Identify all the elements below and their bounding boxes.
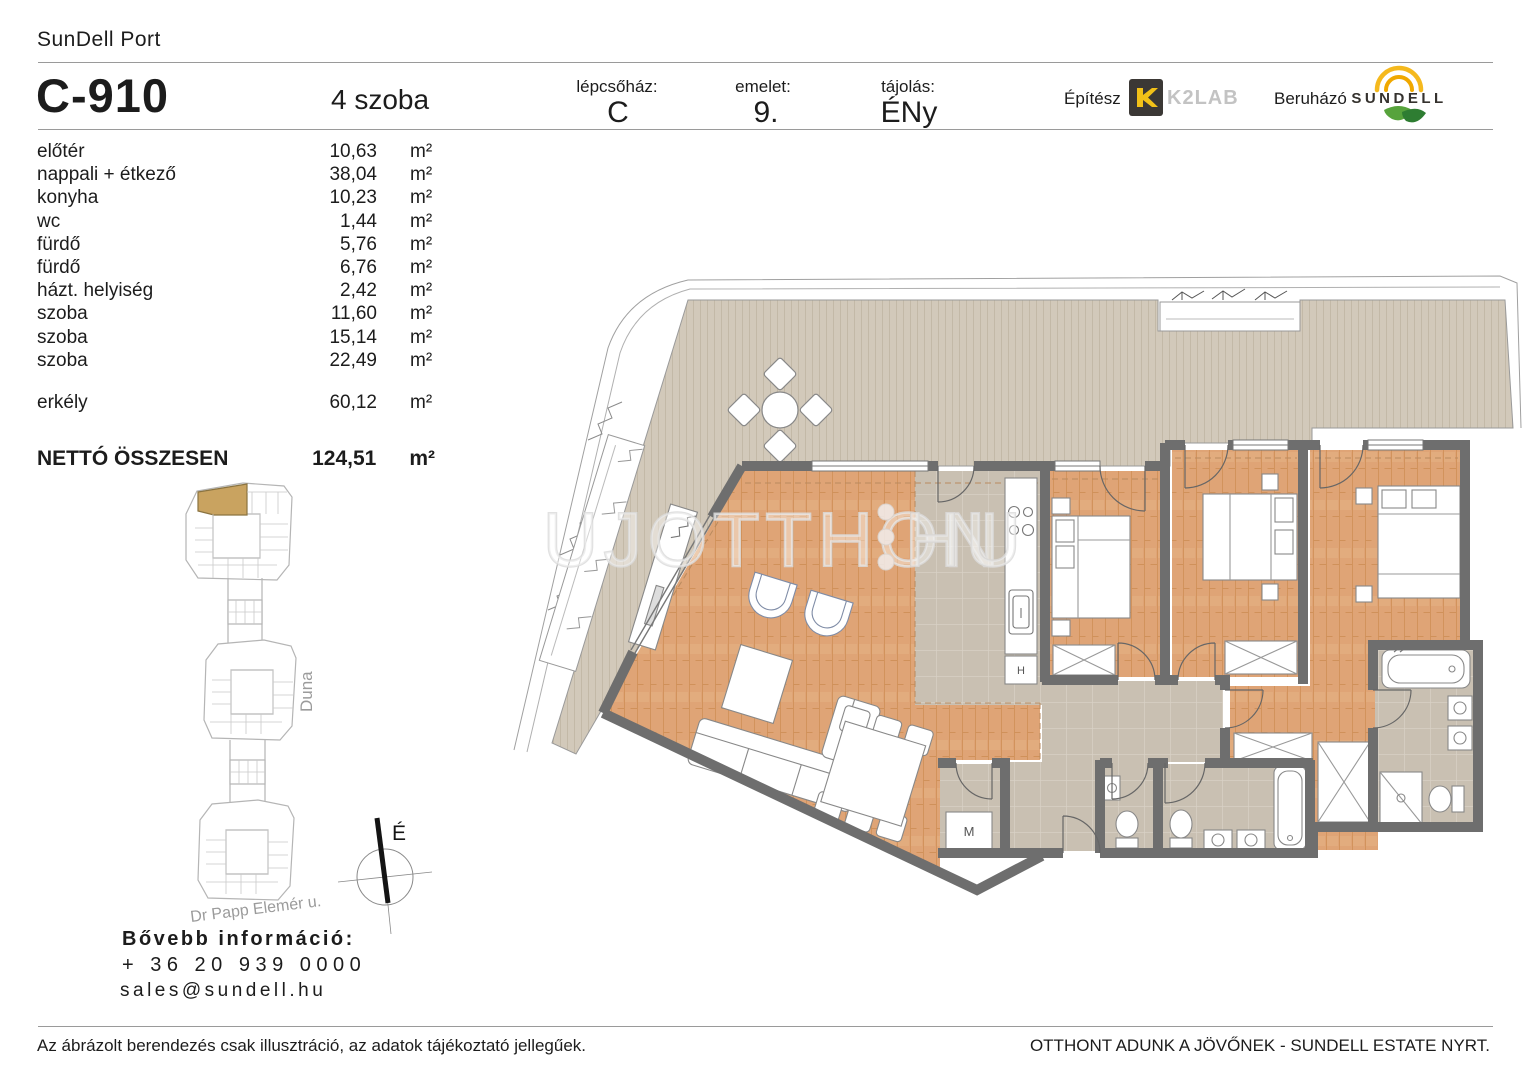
river-label: Duna bbox=[297, 671, 317, 712]
room-row: fürdő 6,76 m² bbox=[37, 256, 435, 279]
leaf-icon bbox=[1402, 109, 1426, 123]
room-name: nappali + étkező bbox=[37, 163, 293, 186]
room-area: 10,63 bbox=[293, 140, 377, 163]
balcony-area: 60,12 bbox=[293, 391, 377, 414]
toilet1 bbox=[1170, 810, 1192, 848]
project-title: SunDell Port bbox=[37, 28, 161, 52]
room-row: konyha 10,23 m² bbox=[37, 186, 435, 209]
room-area-unit: m² bbox=[410, 349, 432, 372]
planter bbox=[1160, 289, 1300, 331]
room-area: 38,04 bbox=[293, 163, 377, 186]
room-area-unit: m² bbox=[410, 302, 432, 325]
room-name: szoba bbox=[37, 302, 293, 325]
washing-machine: M bbox=[946, 812, 992, 850]
unit-type: 4 szoba bbox=[331, 84, 429, 116]
room-area-unit: m² bbox=[410, 186, 432, 209]
wc-toilet bbox=[1116, 811, 1138, 848]
staircase-value: C bbox=[607, 96, 629, 130]
footer-slogan: OTTHONT ADUNK A JÖVŐNEK - SUNDELL ESTATE… bbox=[1030, 1036, 1490, 1056]
footer-divider bbox=[38, 1026, 1493, 1027]
room-row: wc 1,44 m² bbox=[37, 210, 435, 233]
header-divider-top bbox=[38, 62, 1493, 63]
room-area: 5,76 bbox=[293, 233, 377, 256]
room-area: 11,60 bbox=[293, 302, 377, 325]
room-area: 6,76 bbox=[293, 256, 377, 279]
balcony-area-unit: m² bbox=[410, 391, 432, 414]
room-area: 10,23 bbox=[293, 186, 377, 209]
floor-value: 9. bbox=[753, 96, 778, 130]
shower2 bbox=[1380, 772, 1422, 824]
room-area-unit: m² bbox=[410, 256, 432, 279]
room-area-unit: m² bbox=[410, 163, 432, 186]
room-area-unit: m² bbox=[410, 233, 432, 256]
sink1a bbox=[1204, 830, 1232, 850]
bathtub2 bbox=[1382, 646, 1470, 688]
room-area-unit: m² bbox=[410, 326, 432, 349]
contact-email[interactable]: sales@sundell.hu bbox=[120, 980, 326, 1002]
contact-heading: Bővebb információ: bbox=[122, 928, 355, 951]
orientation-value: ÉNy bbox=[881, 96, 938, 130]
room-area: 2,42 bbox=[293, 279, 377, 302]
room-name: előtér bbox=[37, 140, 293, 163]
room-row: előtér 10,63 m² bbox=[37, 140, 435, 163]
room-name: fürdő bbox=[37, 256, 293, 279]
room-name: szoba bbox=[37, 349, 293, 372]
compass-north-label: É bbox=[392, 822, 406, 845]
developer-name: SUNDELL bbox=[1351, 90, 1446, 107]
appliance-label: H bbox=[1017, 665, 1025, 677]
room-row: fürdő 5,76 m² bbox=[37, 233, 435, 256]
architect-label: Építész bbox=[1064, 89, 1121, 109]
net-total-area: 124,51 bbox=[293, 447, 377, 470]
compass-icon: É bbox=[338, 818, 432, 934]
washing-machine-label: M bbox=[964, 824, 975, 839]
room-area: 1,44 bbox=[293, 210, 377, 233]
net-total-row: NETTÓ ÖSSZESEN 124,51 m² bbox=[37, 447, 435, 470]
toilet2 bbox=[1429, 786, 1464, 812]
architect-name: K2LAB bbox=[1167, 87, 1239, 110]
net-total-unit: m² bbox=[409, 447, 435, 470]
contact-phone[interactable]: + 36 20 939 0000 bbox=[122, 954, 366, 977]
room-row: házt. helyiség 2,42 m² bbox=[37, 279, 435, 302]
floor-label: emelet: bbox=[735, 77, 791, 97]
room-area: 15,14 bbox=[293, 326, 377, 349]
net-total-label: NETTÓ ÖSSZESEN bbox=[37, 447, 293, 470]
unit-id: C-910 bbox=[36, 68, 169, 123]
room-row: szoba 15,14 m² bbox=[37, 326, 435, 349]
room-area-unit: m² bbox=[410, 279, 432, 302]
footer-disclaimer: Az ábrázolt berendezés csak illusztráció… bbox=[37, 1036, 586, 1056]
watermark: UJOTTHON HU bbox=[543, 498, 1027, 583]
room-row: szoba 22,49 m² bbox=[37, 349, 435, 372]
sink2b bbox=[1448, 726, 1472, 750]
sink1b bbox=[1237, 830, 1265, 850]
room-row: nappali + étkező 38,04 m² bbox=[37, 163, 435, 186]
orientation-label: tájolás: bbox=[881, 77, 935, 97]
balcony-row: erkély 60,12 m² bbox=[37, 391, 435, 414]
k2lab-logo-icon bbox=[1129, 79, 1163, 116]
site-plan bbox=[186, 483, 296, 900]
room-area-unit: m² bbox=[410, 210, 432, 233]
developer-label: Beruházó bbox=[1274, 89, 1347, 109]
sundell-logo: SUNDELL bbox=[1348, 60, 1450, 128]
svg-text:HU: HU bbox=[905, 498, 1027, 583]
sink2a bbox=[1448, 696, 1472, 720]
floorplan-sheet: H bbox=[0, 0, 1527, 1080]
room-name: konyha bbox=[37, 186, 293, 209]
room-name: wc bbox=[37, 210, 293, 233]
room-name: házt. helyiség bbox=[37, 279, 293, 302]
balcony-label: erkély bbox=[37, 391, 293, 414]
highlighted-unit bbox=[198, 484, 247, 515]
room-area: 22,49 bbox=[293, 349, 377, 372]
staircase-label: lépcsőház: bbox=[576, 77, 657, 97]
room-name: szoba bbox=[37, 326, 293, 349]
room-name: fürdő bbox=[37, 233, 293, 256]
room-row: szoba 11,60 m² bbox=[37, 302, 435, 325]
bed1 bbox=[1052, 498, 1130, 636]
room-area-table: előtér 10,63 m² nappali + étkező 38,04 m… bbox=[37, 140, 435, 372]
room-area-unit: m² bbox=[410, 140, 432, 163]
bathtub1 bbox=[1274, 766, 1306, 850]
